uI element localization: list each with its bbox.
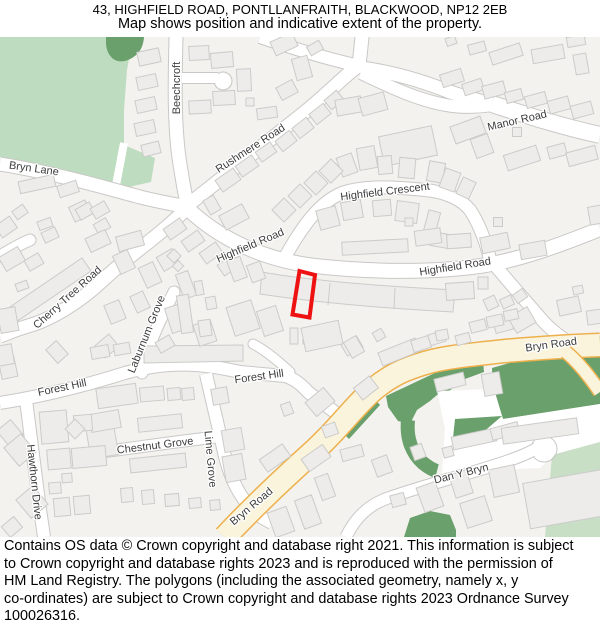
svg-text:Beechcroft: Beechcroft: [171, 62, 183, 115]
